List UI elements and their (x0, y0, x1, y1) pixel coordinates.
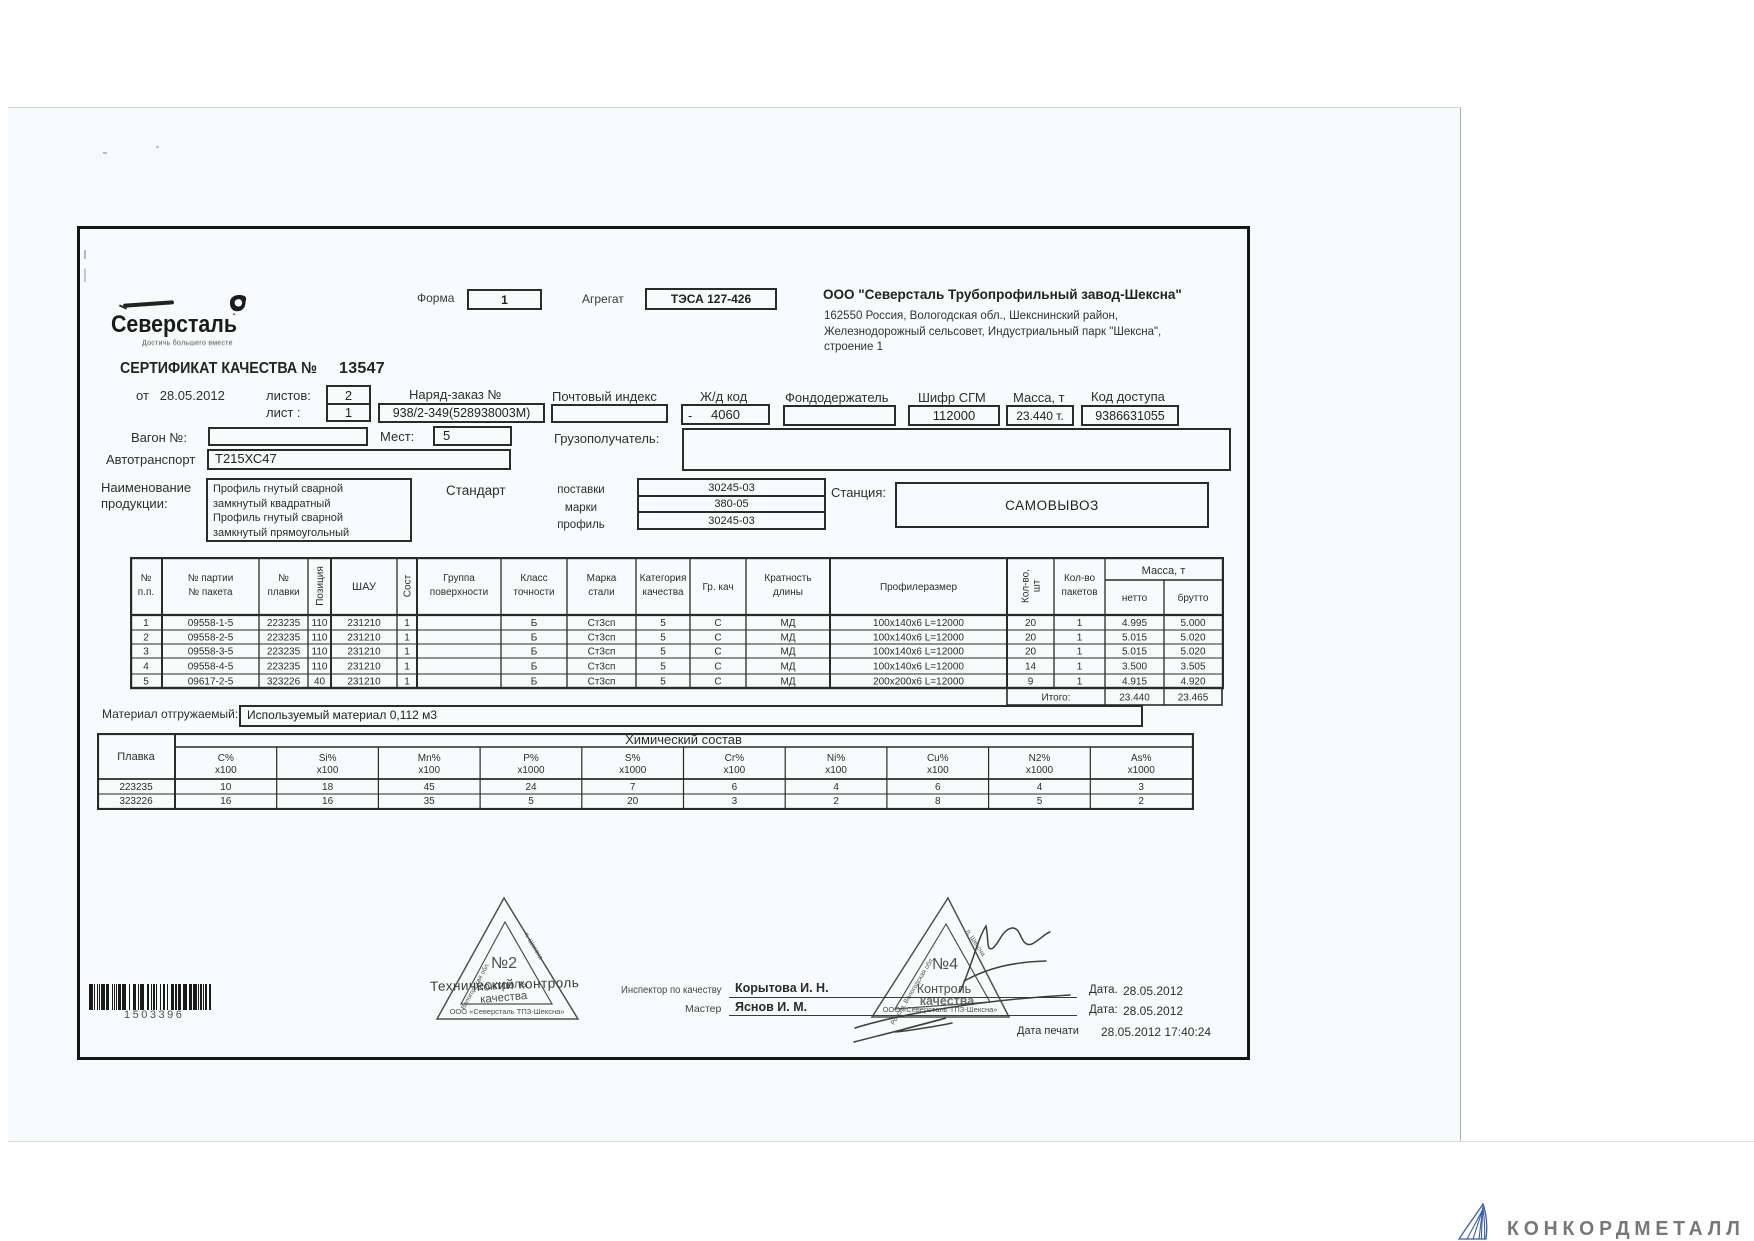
svg-text:23.465: 23.465 (1178, 693, 1209, 704)
svg-text:плавки: плавки (267, 587, 299, 598)
svg-text:Ст3сп: Ст3сп (588, 618, 616, 629)
svg-text:N2%: N2% (1029, 753, 1051, 764)
svg-text:4.920: 4.920 (1180, 677, 1205, 688)
svg-text:4.915: 4.915 (1122, 677, 1147, 688)
svg-text:№ партии: № партии (188, 573, 234, 584)
svg-text:23.440: 23.440 (1119, 693, 1150, 704)
svg-text:длины: длины (773, 587, 803, 598)
svg-text:х1000: х1000 (619, 765, 647, 776)
svg-text:Кол-во: Кол-во (1064, 573, 1096, 584)
svg-text:С: С (714, 618, 721, 629)
svg-text:Масса, т: Масса, т (1142, 565, 1186, 577)
svg-text:4: 4 (833, 782, 839, 793)
svg-text:х100: х100 (724, 765, 746, 776)
svg-text:4.995: 4.995 (1122, 618, 1147, 629)
svg-text:100х140х6 L=12000: 100х140х6 L=12000 (873, 618, 964, 629)
svg-text:231210: 231210 (347, 618, 381, 629)
svg-text:Р%: Р% (523, 753, 539, 764)
svg-text:223235: 223235 (267, 647, 301, 658)
svg-text:8: 8 (935, 796, 941, 807)
svg-text:1: 1 (143, 618, 149, 629)
svg-text:223235: 223235 (267, 662, 301, 673)
svg-text:брутто: брутто (1178, 592, 1209, 604)
svg-text:№4: №4 (932, 956, 958, 973)
svg-text:110: 110 (312, 618, 328, 629)
svg-text:1: 1 (1077, 633, 1083, 644)
svg-text:С: С (714, 677, 721, 688)
svg-text:110: 110 (312, 647, 328, 658)
svg-text:09617-2-5: 09617-2-5 (188, 677, 234, 688)
svg-text:3.500: 3.500 (1122, 662, 1147, 673)
svg-text:Si%: Si% (319, 753, 337, 764)
svg-text:х100: х100 (215, 765, 237, 776)
svg-text:40: 40 (314, 677, 326, 688)
svg-text:Марка: Марка (587, 573, 617, 584)
svg-text:Б: Б (531, 618, 538, 629)
svg-text:3: 3 (732, 796, 738, 807)
svg-text:5.000: 5.000 (1180, 618, 1205, 629)
svg-text:Итого:: Итого: (1042, 693, 1071, 704)
svg-text:100х140х6 L=12000: 100х140х6 L=12000 (873, 662, 964, 673)
svg-text:МД: МД (780, 618, 795, 629)
svg-text:1: 1 (404, 618, 410, 629)
svg-text:х100: х100 (418, 765, 440, 776)
svg-text:х1000: х1000 (1128, 765, 1156, 776)
svg-text:3.505: 3.505 (1180, 662, 1205, 673)
svg-text:1: 1 (404, 677, 410, 688)
svg-text:шт: шт (1032, 579, 1043, 592)
svg-text:5.015: 5.015 (1122, 633, 1147, 644)
svg-text:Б: Б (531, 662, 538, 673)
svg-text:231210: 231210 (347, 633, 381, 644)
svg-text:стали: стали (588, 587, 614, 598)
svg-text:2: 2 (833, 796, 839, 807)
svg-text:Б: Б (531, 633, 538, 644)
svg-text:5: 5 (660, 633, 666, 644)
svg-text:Позиция: Позиция (315, 566, 326, 606)
svg-text:20: 20 (1025, 633, 1037, 644)
svg-text:№ пакета: № пакета (188, 587, 233, 598)
svg-text:ООО «Северсталь ТПЗ-Шексна»: ООО «Северсталь ТПЗ-Шексна» (450, 1007, 565, 1016)
svg-text:Сост: Сост (403, 574, 414, 597)
svg-text:х100: х100 (927, 765, 949, 776)
svg-text:20: 20 (627, 796, 639, 807)
svg-text:231210: 231210 (347, 647, 381, 658)
svg-text:Б: Б (531, 677, 538, 688)
svg-text:Профилеразмер: Профилеразмер (880, 581, 958, 593)
svg-text:х1000: х1000 (517, 765, 545, 776)
svg-text:2: 2 (1138, 796, 1144, 807)
svg-text:5: 5 (1037, 796, 1043, 807)
svg-text:нетто: нетто (1122, 593, 1148, 604)
svg-text:5: 5 (660, 647, 666, 658)
svg-text:4: 4 (1037, 782, 1043, 793)
svg-text:3: 3 (143, 647, 149, 658)
svg-text:100х140х6 L=12000: 100х140х6 L=12000 (873, 633, 964, 644)
svg-text:09558-3-5: 09558-3-5 (188, 647, 234, 658)
svg-text:5: 5 (528, 796, 534, 807)
svg-text:5.020: 5.020 (1180, 647, 1205, 658)
svg-text:110: 110 (312, 662, 328, 673)
svg-text:231210: 231210 (347, 677, 381, 688)
svg-text:Mn%: Mn% (418, 753, 441, 764)
svg-text:МД: МД (780, 647, 795, 658)
svg-text:Ст3сп: Ст3сп (588, 662, 616, 673)
svg-text:Б: Б (531, 647, 538, 658)
svg-text:6: 6 (935, 782, 941, 793)
svg-text:09558-1-5: 09558-1-5 (188, 618, 234, 629)
svg-text:качества: качества (642, 587, 683, 598)
svg-text:C%: C% (218, 753, 234, 764)
svg-text:5: 5 (660, 662, 666, 673)
svg-text:5.015: 5.015 (1122, 647, 1147, 658)
svg-text:5.020: 5.020 (1180, 633, 1205, 644)
svg-text:5: 5 (143, 677, 149, 688)
svg-text:№: № (141, 573, 152, 584)
svg-text:323226: 323226 (267, 677, 301, 688)
svg-text:точности: точности (513, 587, 554, 598)
svg-text:Cr%: Cr% (725, 753, 745, 764)
svg-text:9: 9 (1028, 677, 1034, 688)
svg-text:7: 7 (630, 782, 636, 793)
svg-text:ШАУ: ШАУ (352, 581, 377, 593)
svg-text:1: 1 (1077, 618, 1083, 629)
svg-text:3: 3 (1138, 782, 1144, 793)
svg-text:Ст3сп: Ст3сп (588, 633, 616, 644)
svg-text:С: С (714, 647, 721, 658)
svg-text:45: 45 (424, 782, 436, 793)
svg-text:№2: №2 (491, 955, 517, 972)
svg-text:200х200х6 L=12000: 200х200х6 L=12000 (873, 677, 964, 688)
svg-text:Cu%: Cu% (927, 753, 949, 764)
svg-text:110: 110 (312, 633, 328, 644)
svg-text:6: 6 (732, 782, 738, 793)
svg-text:п. Шексна: п. Шексна (523, 932, 545, 962)
svg-text:Кратность: Кратность (764, 573, 811, 584)
svg-text:323226: 323226 (119, 796, 153, 807)
svg-text:Ст3сп: Ст3сп (588, 647, 616, 658)
svg-text:16: 16 (322, 796, 334, 807)
svg-text:1: 1 (1077, 662, 1083, 673)
svg-text:Плавка: Плавка (117, 751, 155, 763)
svg-text:10: 10 (220, 782, 232, 793)
svg-text:Категория: Категория (640, 573, 687, 584)
svg-text:1: 1 (1077, 647, 1083, 658)
svg-text:Кол-во,: Кол-во, (1021, 569, 1032, 603)
svg-text:х100: х100 (317, 765, 339, 776)
svg-text:пакетов: пакетов (1061, 587, 1097, 598)
svg-text:п. Шексна: п. Шексна (964, 929, 986, 958)
svg-text:№: № (278, 573, 289, 584)
svg-text:16: 16 (220, 796, 232, 807)
svg-text:223235: 223235 (267, 633, 301, 644)
svg-text:4: 4 (143, 662, 149, 673)
svg-text:п.п.: п.п. (138, 587, 154, 598)
svg-text:231210: 231210 (347, 662, 381, 673)
svg-text:223235: 223235 (119, 782, 153, 793)
svg-text:1: 1 (404, 662, 410, 673)
svg-text:24: 24 (525, 782, 537, 793)
svg-text:С: С (714, 662, 721, 673)
svg-text:Химический состав: Химический состав (625, 733, 742, 747)
svg-text:1: 1 (1077, 677, 1083, 688)
svg-text:As%: As% (1131, 753, 1152, 764)
svg-text:х100: х100 (825, 765, 847, 776)
svg-text:поверхности: поверхности (430, 587, 488, 598)
svg-text:S%: S% (625, 753, 641, 764)
svg-text:Гр. кач: Гр. кач (702, 582, 733, 593)
svg-text:МД: МД (780, 677, 795, 688)
svg-text:223235: 223235 (267, 618, 301, 629)
svg-text:20: 20 (1025, 647, 1037, 658)
svg-text:Ni%: Ni% (827, 753, 845, 764)
svg-text:Ст3сп: Ст3сп (588, 677, 616, 688)
svg-text:Группа: Группа (443, 573, 475, 584)
svg-text:С: С (714, 633, 721, 644)
svg-text:х1000: х1000 (1026, 765, 1054, 776)
svg-text:1: 1 (404, 633, 410, 644)
svg-text:2: 2 (143, 633, 149, 644)
svg-text:09558-4-5: 09558-4-5 (188, 662, 234, 673)
svg-text:МД: МД (780, 633, 795, 644)
svg-text:09558-2-5: 09558-2-5 (188, 633, 234, 644)
svg-text:5: 5 (660, 618, 666, 629)
svg-text:1: 1 (404, 647, 410, 658)
svg-text:20: 20 (1025, 618, 1037, 629)
svg-text:МД: МД (780, 662, 795, 673)
svg-text:100х140х6 L=12000: 100х140х6 L=12000 (873, 647, 964, 658)
svg-text:18: 18 (322, 782, 334, 793)
svg-text:35: 35 (424, 796, 436, 807)
svg-text:5: 5 (660, 677, 666, 688)
svg-text:14: 14 (1025, 662, 1037, 673)
svg-text:Класс: Класс (520, 573, 547, 584)
